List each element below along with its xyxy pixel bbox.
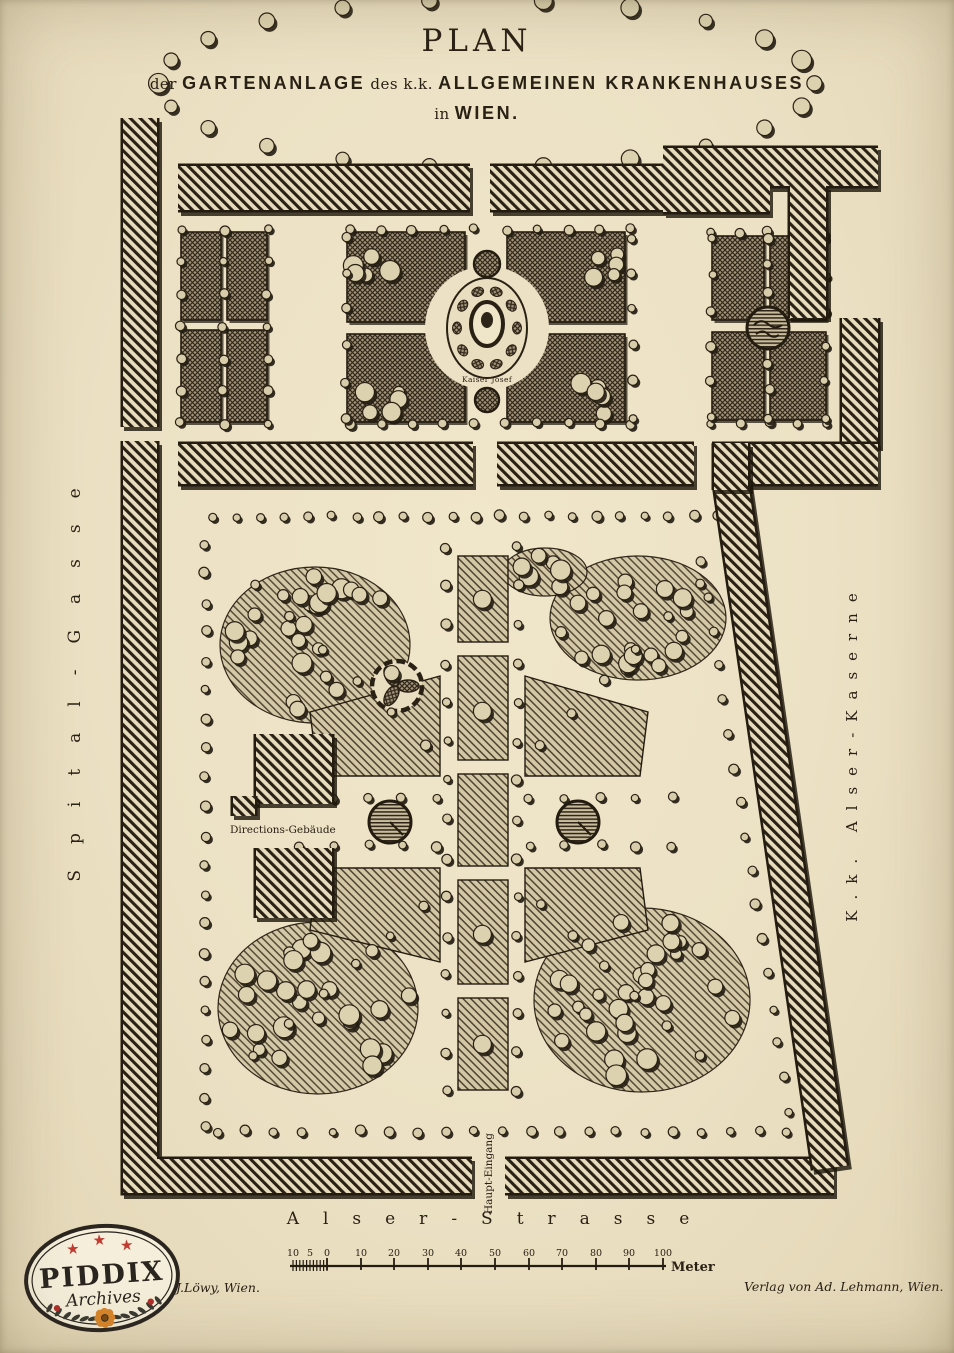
star-icon: ★ bbox=[92, 1231, 107, 1250]
kaiser-josef-monument bbox=[447, 278, 527, 378]
parterre-circle-top bbox=[474, 251, 500, 277]
title-word: der bbox=[150, 75, 177, 93]
scale-label: 60 bbox=[523, 1248, 535, 1259]
scale-label: 10 bbox=[287, 1248, 299, 1259]
street-label-alser-kaserne: K.k. Alser-Kaserne bbox=[843, 582, 861, 921]
scale-label: 50 bbox=[489, 1248, 501, 1259]
street-label-alser-strasse: Alser-Strasse bbox=[286, 1209, 714, 1229]
scale-label: 40 bbox=[455, 1248, 467, 1259]
round-pond bbox=[747, 307, 789, 349]
star-icon: ★ bbox=[66, 1240, 81, 1259]
scale-unit-label: Meter bbox=[671, 1260, 715, 1275]
fountain-basin-west bbox=[369, 801, 411, 843]
scale-label: 10 bbox=[355, 1248, 367, 1259]
title-word: des k.k. bbox=[370, 75, 433, 93]
parterre-circle-bottom bbox=[475, 388, 499, 412]
page-title: PLAN bbox=[0, 26, 954, 57]
fountain-basin-east bbox=[557, 801, 599, 843]
main-entrance-label: Haupt-Eingang bbox=[483, 1133, 495, 1214]
title-word: ALLGEMEINEN KRANKENHAUSES bbox=[438, 73, 804, 93]
monument-label: Kaiser Josef bbox=[462, 375, 513, 384]
scale-label: 0 bbox=[324, 1248, 330, 1259]
credit-left: J.Löwy, Wien. bbox=[173, 1280, 260, 1295]
scale-label: 70 bbox=[556, 1248, 568, 1259]
title-line-2: der GARTENANLAGE des k.k. ALLGEMEINEN KR… bbox=[0, 74, 954, 92]
scale-label: 5 bbox=[307, 1248, 313, 1259]
star-icon: ★ bbox=[119, 1236, 134, 1255]
title-block: PLAN der GARTENANLAGE des k.k. ALLGEMEIN… bbox=[0, 26, 954, 122]
street-label-spitalgasse: Spital-Gasse bbox=[65, 462, 85, 881]
title-word: in bbox=[434, 105, 449, 123]
title-word: GARTENANLAGE bbox=[182, 73, 365, 93]
piddix-archives-watermark: ★ ★ ★ PIDDIX Archives bbox=[18, 1217, 185, 1340]
scale-bar: 10 5 0 10 20 30 40 50 60 70 80 90 100 Me… bbox=[287, 1248, 715, 1275]
garden-plan-drawing: Kaiser Josef Directions-Gebäude Haupt-Ei… bbox=[0, 0, 954, 1353]
credit-right: Verlag von Ad. Lehmann, Wien. bbox=[744, 1279, 943, 1294]
plan-page: Kaiser Josef Directions-Gebäude Haupt-Ei… bbox=[0, 0, 954, 1353]
title-line-3: in WIEN. bbox=[0, 104, 954, 122]
scale-label: 20 bbox=[388, 1248, 400, 1259]
title-word: WIEN. bbox=[455, 103, 520, 123]
scale-label: 80 bbox=[590, 1248, 602, 1259]
scale-label: 30 bbox=[422, 1248, 434, 1259]
scale-label: 90 bbox=[623, 1248, 635, 1259]
scale-label: 100 bbox=[654, 1248, 672, 1259]
directions-building-label: Directions-Gebäude bbox=[230, 824, 336, 836]
